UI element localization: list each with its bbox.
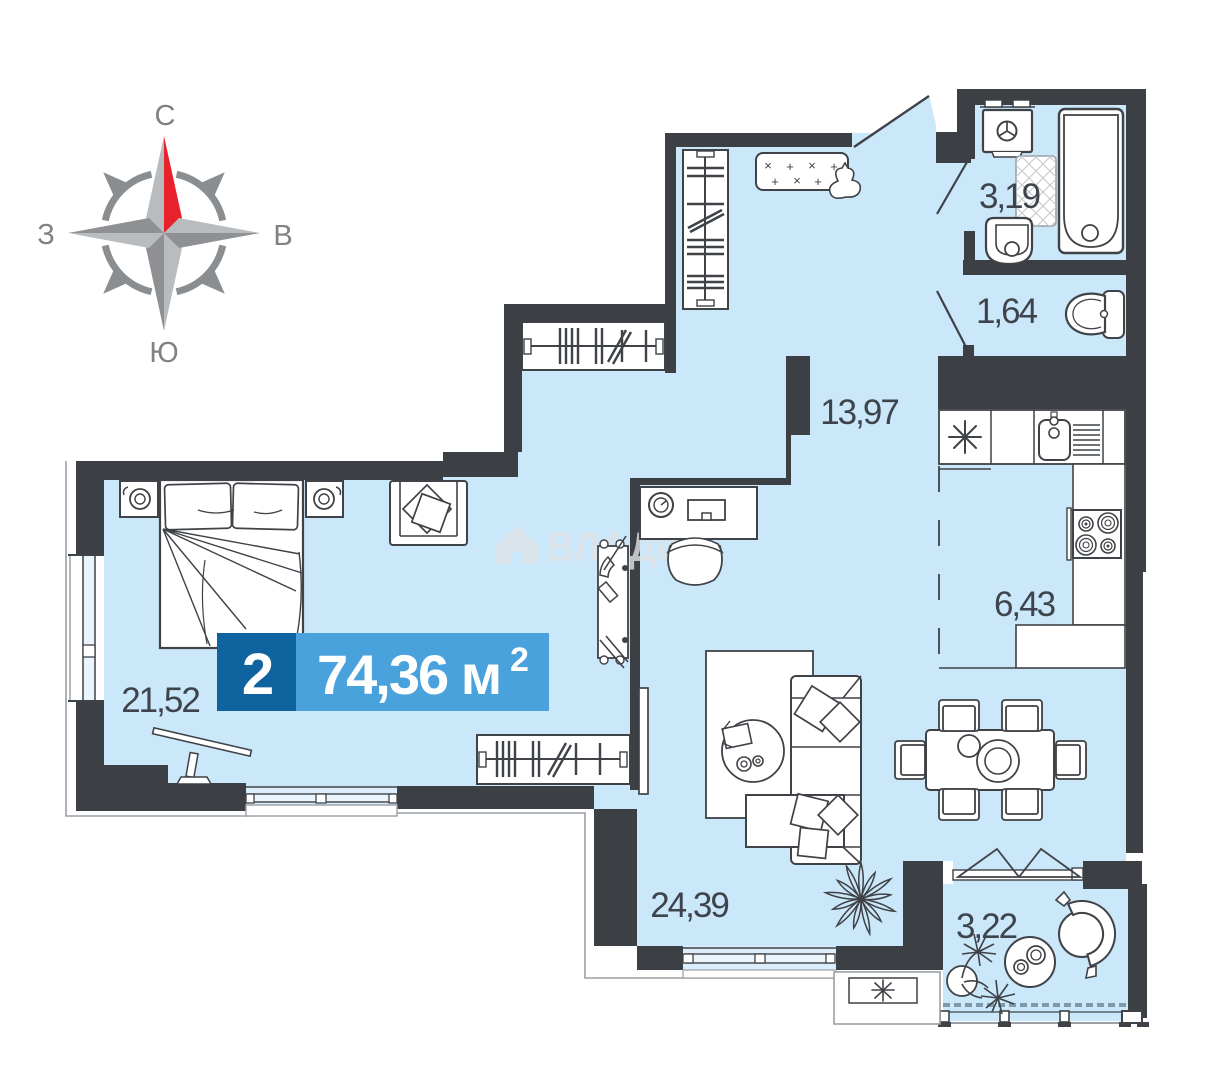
svg-text:74,36 м: 74,36 м [317, 643, 500, 706]
svg-text:21,52: 21,52 [121, 681, 199, 720]
svg-text:+: + [814, 174, 822, 189]
svg-text:В: В [273, 220, 292, 252]
svg-text:1,64: 1,64 [976, 292, 1038, 331]
svg-text:2: 2 [242, 642, 274, 707]
svg-text:×: × [808, 158, 816, 173]
svg-text:13,97: 13,97 [820, 393, 898, 432]
svg-text:С: С [155, 100, 176, 132]
svg-text:+: + [771, 174, 779, 189]
svg-text:3,19: 3,19 [979, 177, 1040, 216]
svg-text:Ю: Ю [149, 337, 178, 369]
svg-text:×: × [764, 158, 772, 173]
svg-text:24,39: 24,39 [650, 886, 728, 925]
svg-text:2: 2 [510, 641, 529, 679]
svg-text:6,43: 6,43 [994, 585, 1055, 624]
svg-text:3,22: 3,22 [956, 907, 1017, 946]
svg-text:+: + [786, 159, 794, 174]
svg-text:З: З [37, 219, 55, 251]
svg-text:×: × [793, 173, 801, 188]
